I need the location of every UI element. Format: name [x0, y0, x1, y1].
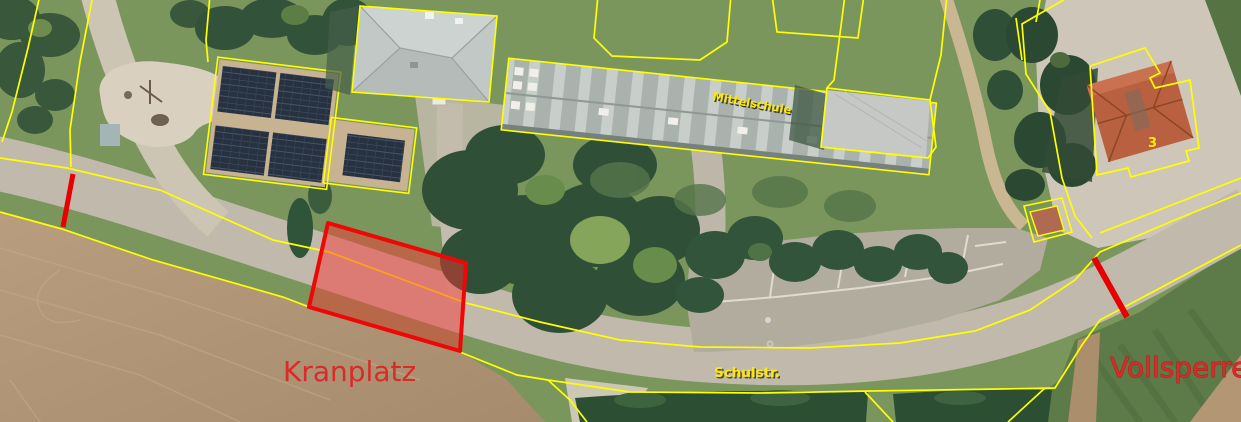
kranplatz-label: Kranplatz: [283, 355, 416, 388]
hedge-row-bottom: [575, 390, 1052, 422]
svg-text:Schulstr.: Schulstr.: [714, 365, 780, 381]
aerial-map-canvas[interactable]: Mittelschule Mittelschule Schulstr. Schu…: [0, 0, 1241, 422]
flat-building: [821, 90, 930, 157]
schulstr-label: Schulstr. Schulstr.: [714, 365, 781, 383]
paddling-pool: [100, 124, 120, 146]
map-screenshot: Mittelschule Mittelschule Schulstr. Schu…: [0, 0, 1241, 422]
vollsperre-label: Vollsperre:: [1110, 351, 1241, 384]
house-number-label: 3: [1148, 136, 1157, 151]
solar-panel-array: [217, 66, 276, 118]
hedge-south-of-solar: [287, 198, 313, 258]
hip-roof-building: [352, 6, 497, 102]
